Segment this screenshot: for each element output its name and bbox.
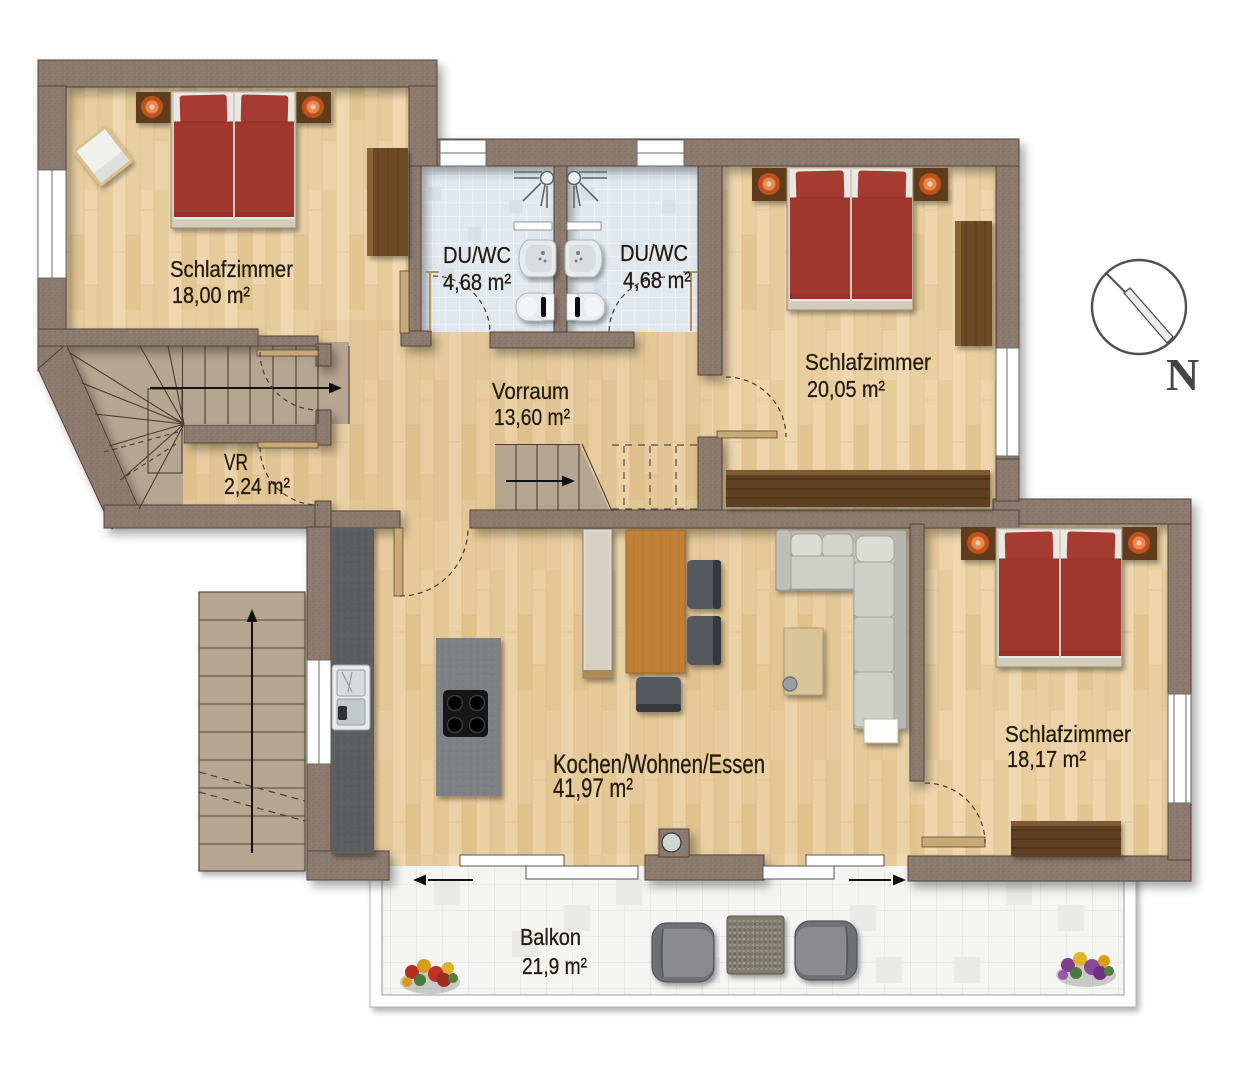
svg-text:18,17 m²: 18,17 m² [1007,746,1086,772]
svg-text:N: N [1166,349,1199,400]
svg-text:Schlafzimmer: Schlafzimmer [1005,721,1131,747]
svg-text:21,9 m²: 21,9 m² [522,953,587,979]
svg-text:Schlafzimmer: Schlafzimmer [805,349,931,375]
svg-text:Balkon: Balkon [520,924,581,950]
svg-text:20,05 m²: 20,05 m² [807,376,885,402]
svg-text:2,24 m²: 2,24 m² [224,473,290,499]
svg-text:4,68 m²: 4,68 m² [443,269,511,295]
svg-text:DU/WC: DU/WC [620,240,688,266]
svg-text:13,60 m²: 13,60 m² [494,404,570,430]
svg-text:Vorraum: Vorraum [492,378,569,404]
svg-text:18,00 m²: 18,00 m² [172,282,250,308]
svg-text:4,68 m²: 4,68 m² [623,267,691,293]
svg-text:41,97 m²: 41,97 m² [553,773,633,803]
svg-text:Schlafzimmer: Schlafzimmer [170,256,293,282]
svg-text:VR: VR [224,449,248,475]
svg-text:DU/WC: DU/WC [443,242,511,268]
